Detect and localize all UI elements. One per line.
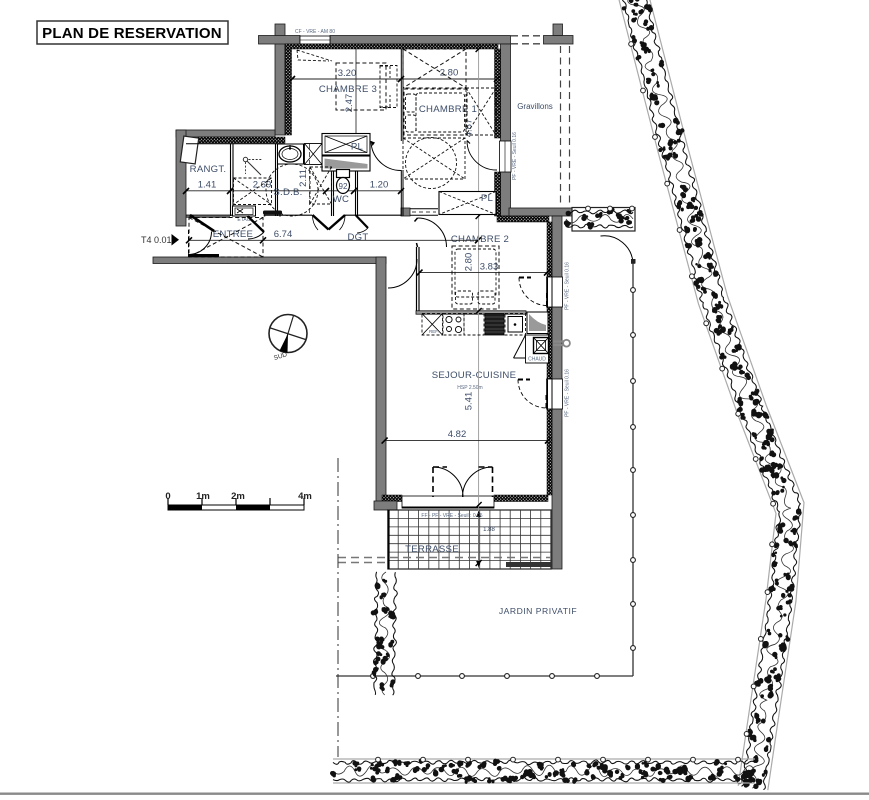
svg-text:3.20: 3.20 (338, 68, 357, 79)
svg-text:PL: PL (481, 193, 494, 204)
svg-text:PF - VRE - Seuil 0.16: PF - VRE - Seuil 0.16 (565, 369, 571, 417)
svg-text:PL: PL (351, 142, 364, 153)
svg-text:2.47: 2.47 (344, 94, 355, 113)
svg-text:4.82: 4.82 (448, 429, 467, 440)
svg-text:2.80: 2.80 (464, 253, 475, 272)
svg-text:5.41: 5.41 (464, 392, 475, 411)
svg-text:CHAMBRE 3: CHAMBRE 3 (319, 84, 377, 95)
svg-text:4.87: 4.87 (464, 119, 475, 138)
svg-text:REF.: REF. (429, 329, 439, 334)
svg-text:ENTREE: ENTREE (213, 229, 253, 240)
svg-text:PF - VRE - Seuil 0.16: PF - VRE - Seuil 0.16 (512, 132, 518, 180)
svg-text:S.D.B.: S.D.B. (273, 187, 302, 198)
svg-text:Gravillons: Gravillons (517, 102, 553, 111)
svg-text:RANGT.: RANGT. (190, 164, 227, 175)
svg-text:2.11: 2.11 (298, 169, 309, 187)
svg-text:4m: 4m (298, 491, 312, 502)
svg-text:T4 0.01: T4 0.01 (141, 235, 172, 245)
svg-text:DGT: DGT (347, 232, 368, 243)
svg-text:1.88: 1.88 (483, 527, 495, 533)
svg-text:WC: WC (333, 194, 349, 205)
svg-text:TERRASSE: TERRASSE (405, 544, 459, 555)
svg-text:CHAMBRE 1: CHAMBRE 1 (419, 104, 477, 115)
svg-text:CHAUD: CHAUD (528, 357, 546, 363)
svg-text:PF - VRE - Seuil 0.16: PF - VRE - Seuil 0.16 (565, 262, 571, 310)
svg-text:PLAN DE RESERVATION: PLAN DE RESERVATION (42, 25, 222, 42)
svg-text:CF - VRE - AM 80: CF - VRE - AM 80 (295, 29, 335, 35)
svg-text:1.20: 1.20 (370, 180, 389, 191)
svg-text:1m: 1m (196, 491, 210, 502)
svg-text:2m: 2m (231, 491, 245, 502)
svg-text:6.74: 6.74 (274, 229, 293, 240)
svg-text:1.41: 1.41 (198, 180, 217, 191)
svg-text:FF - PF - VRE - Seuil : 0.05: FF - PF - VRE - Seuil : 0.05 (421, 513, 482, 519)
svg-text:CHAMBRE 2: CHAMBRE 2 (451, 234, 509, 245)
svg-text:3.83: 3.83 (480, 262, 499, 273)
svg-text:JARDIN PRIVATIF: JARDIN PRIVATIF (499, 606, 577, 616)
svg-text:0: 0 (165, 491, 170, 502)
svg-text:92: 92 (339, 182, 348, 191)
svg-text:SEJOUR-CUISINE: SEJOUR-CUISINE (432, 370, 517, 381)
